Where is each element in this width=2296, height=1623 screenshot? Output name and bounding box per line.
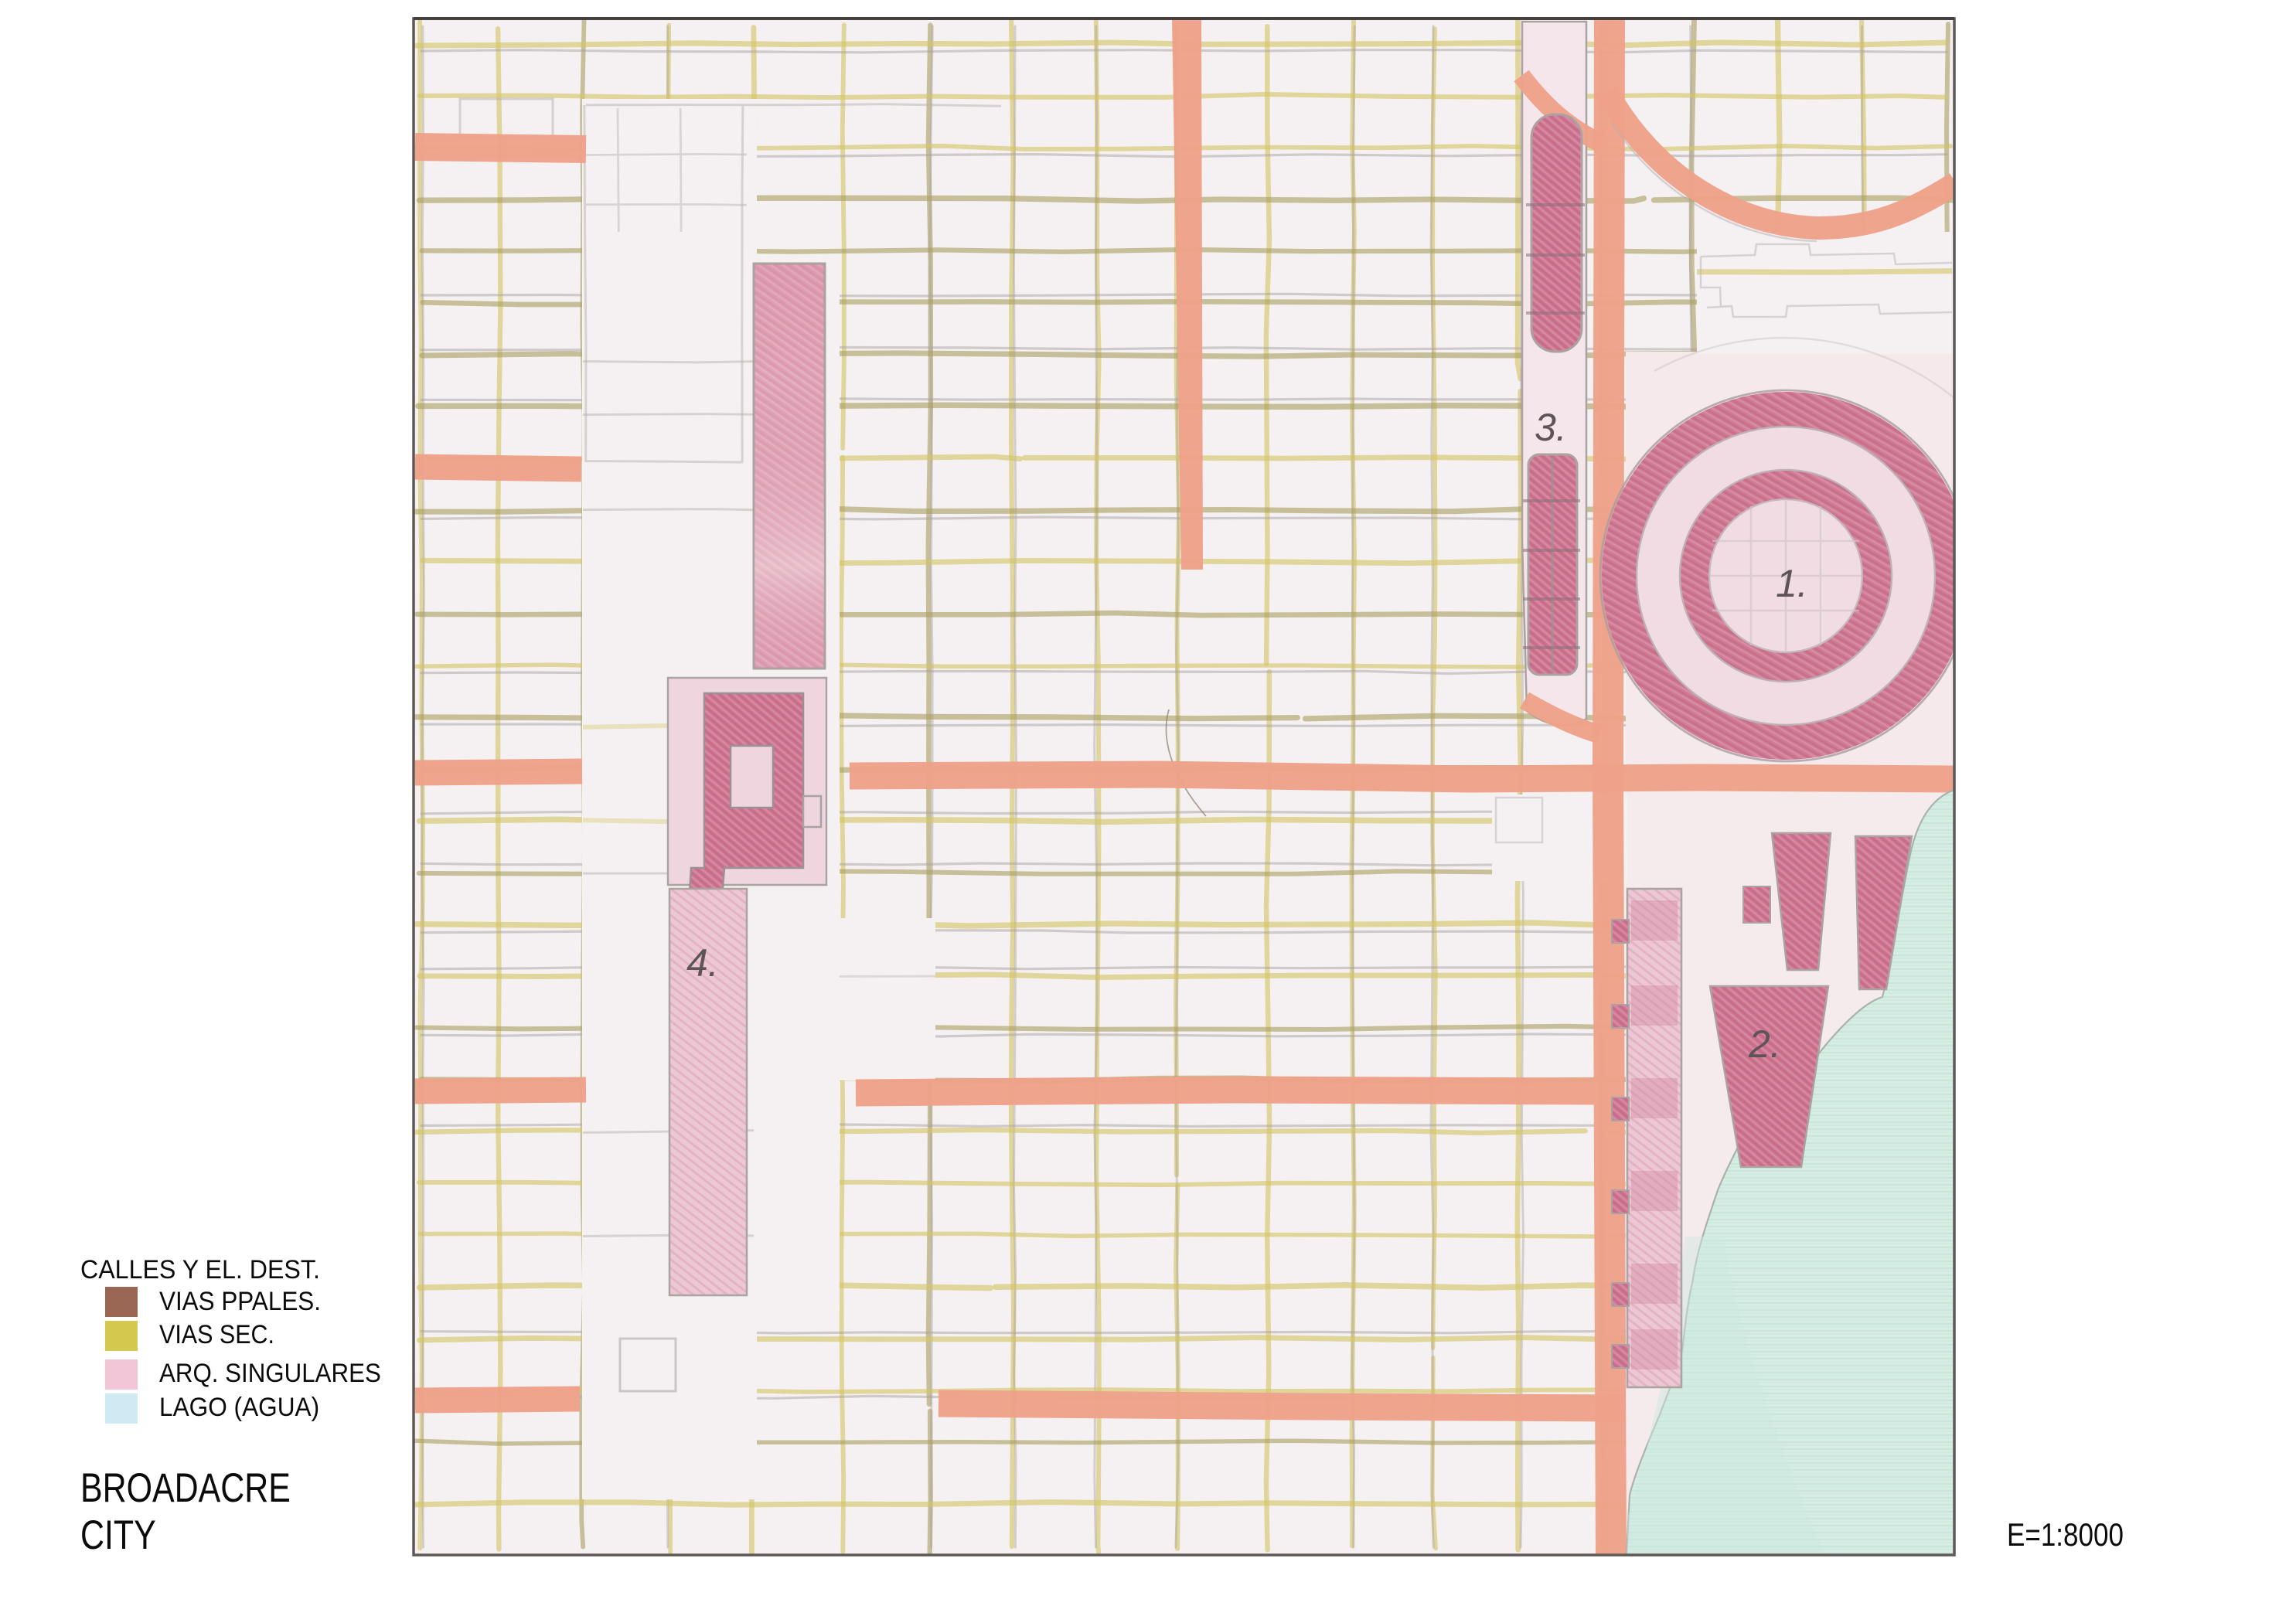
svg-text:2.: 2. (1748, 1022, 1781, 1066)
svg-text:1.: 1. (1776, 562, 1808, 605)
svg-text:4.: 4. (686, 941, 719, 985)
svg-text:3.: 3. (1535, 406, 1567, 449)
